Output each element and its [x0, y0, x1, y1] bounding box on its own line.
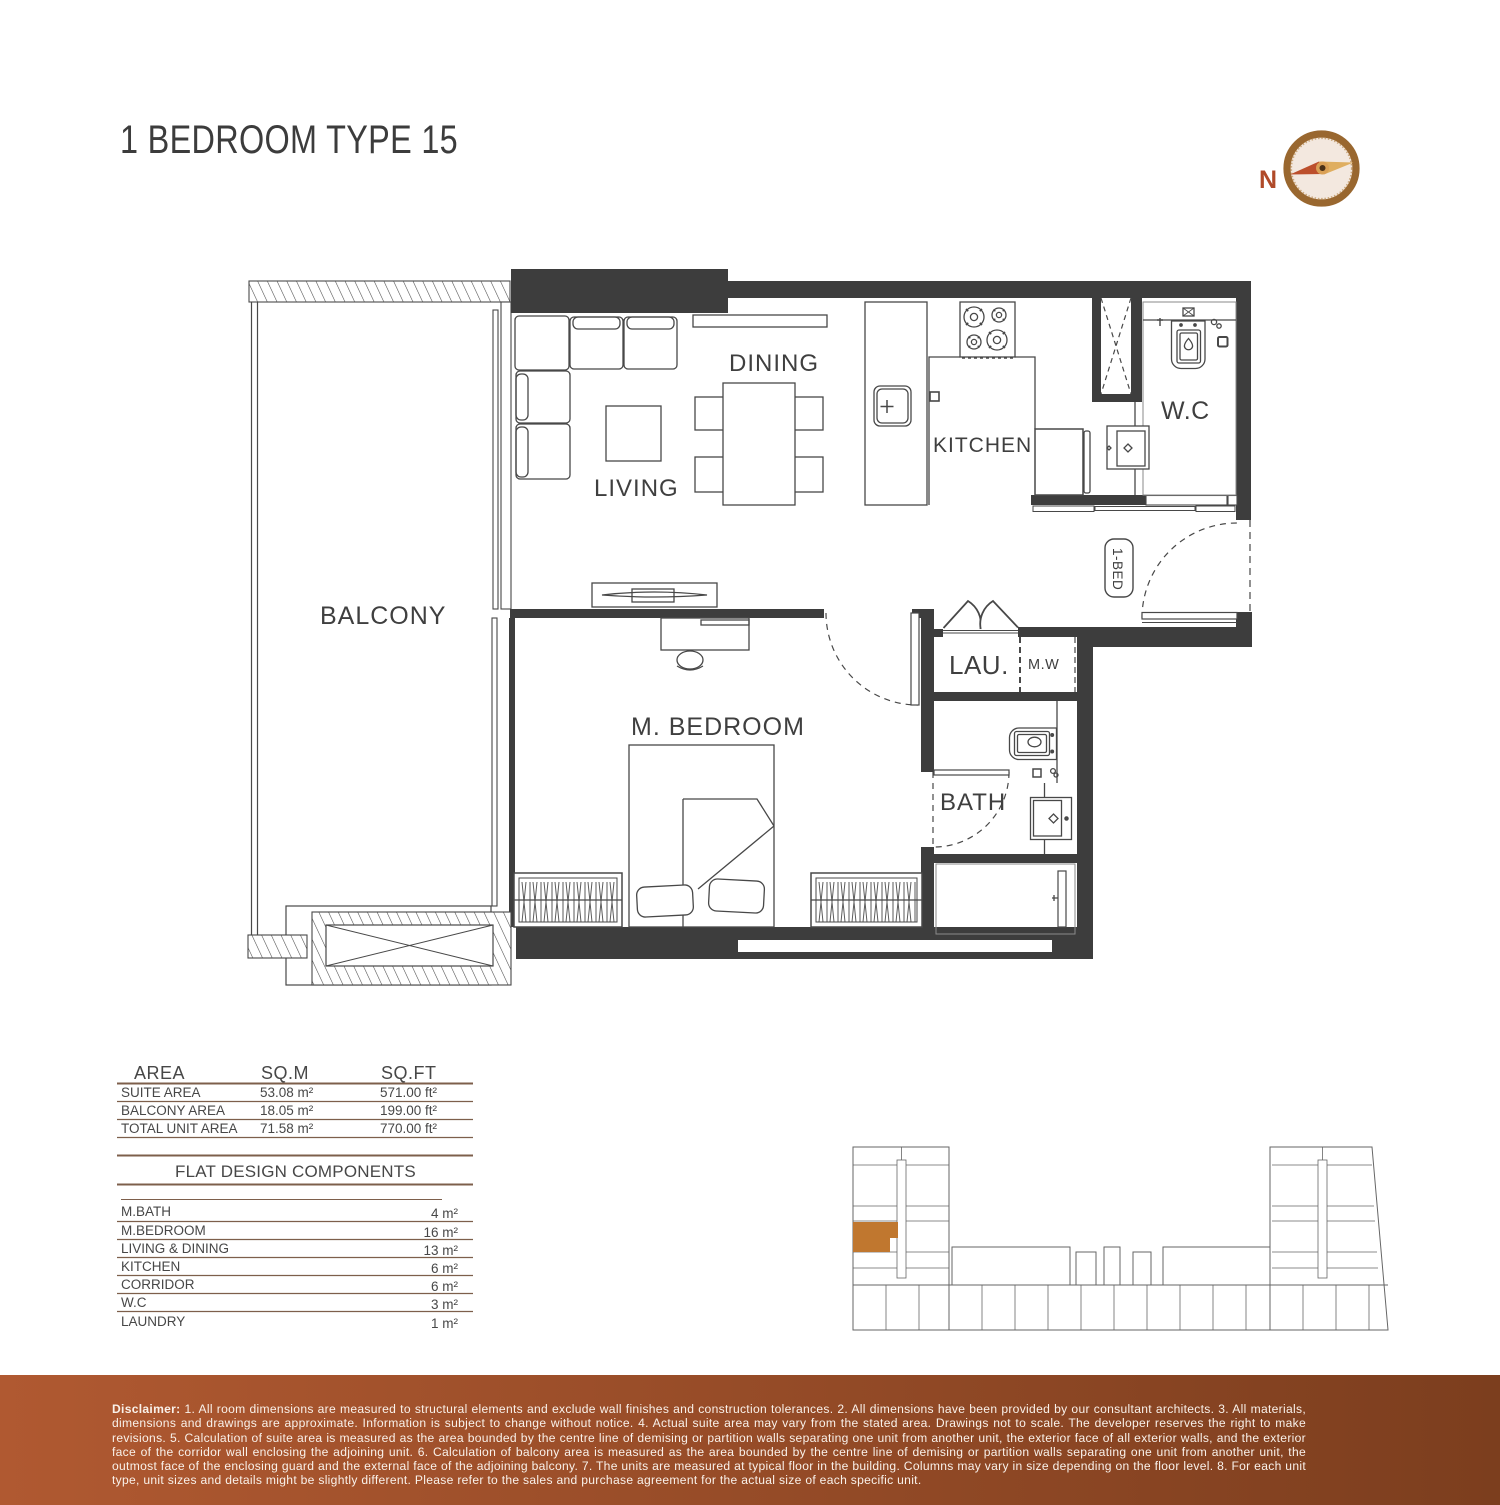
- svg-text:KITCHEN: KITCHEN: [933, 434, 1032, 457]
- svg-text:W.C: W.C: [1161, 397, 1210, 425]
- svg-text:KITCHEN: KITCHEN: [121, 1259, 180, 1274]
- svg-text:6 m²: 6 m²: [431, 1279, 459, 1294]
- svg-text:SUITE AREA: SUITE AREA: [121, 1085, 201, 1100]
- svg-text:71.58 m²: 71.58 m²: [260, 1121, 314, 1136]
- svg-text:13 m²: 13 m²: [423, 1243, 458, 1258]
- svg-text:LIVING & DINING: LIVING & DINING: [121, 1241, 229, 1256]
- svg-text:TOTAL UNIT AREA: TOTAL UNIT AREA: [121, 1121, 238, 1136]
- svg-text:M. BEDROOM: M. BEDROOM: [631, 713, 805, 741]
- svg-text:SQ.M: SQ.M: [261, 1063, 309, 1083]
- svg-text:SQ.FT: SQ.FT: [381, 1063, 437, 1083]
- svg-text:DINING: DINING: [729, 350, 819, 377]
- svg-text:M.BATH: M.BATH: [121, 1204, 171, 1219]
- svg-text:BATH: BATH: [940, 789, 1006, 816]
- svg-text:571.00 ft²: 571.00 ft²: [380, 1085, 438, 1100]
- svg-text:6 m²: 6 m²: [431, 1261, 459, 1276]
- svg-text:LIVING: LIVING: [594, 475, 679, 502]
- svg-text:1 m²: 1 m²: [431, 1316, 459, 1331]
- svg-text:199.00 ft²: 199.00 ft²: [380, 1103, 438, 1118]
- svg-text:53.08 m²: 53.08 m²: [260, 1085, 314, 1100]
- svg-text:770.00 ft²: 770.00 ft²: [380, 1121, 438, 1136]
- svg-text:CORRIDOR: CORRIDOR: [121, 1277, 195, 1292]
- svg-text:16 m²: 16 m²: [423, 1225, 458, 1240]
- svg-text:FLAT DESIGN COMPONENTS: FLAT DESIGN COMPONENTS: [175, 1162, 416, 1181]
- svg-text:M.BEDROOM: M.BEDROOM: [121, 1223, 206, 1238]
- svg-text:M.W: M.W: [1028, 657, 1059, 673]
- svg-text:W.C: W.C: [121, 1295, 147, 1310]
- svg-text:LAU.: LAU.: [949, 650, 1009, 680]
- svg-text:18.05 m²: 18.05 m²: [260, 1103, 314, 1118]
- svg-text:BALCONY AREA: BALCONY AREA: [121, 1103, 225, 1118]
- svg-text:LAUNDRY: LAUNDRY: [121, 1314, 185, 1329]
- svg-text:AREA: AREA: [134, 1063, 185, 1083]
- svg-text:3 m²: 3 m²: [431, 1297, 459, 1312]
- svg-text:1-BED: 1-BED: [1110, 548, 1125, 590]
- svg-text:BALCONY: BALCONY: [320, 602, 446, 630]
- svg-text:4 m²: 4 m²: [431, 1206, 459, 1221]
